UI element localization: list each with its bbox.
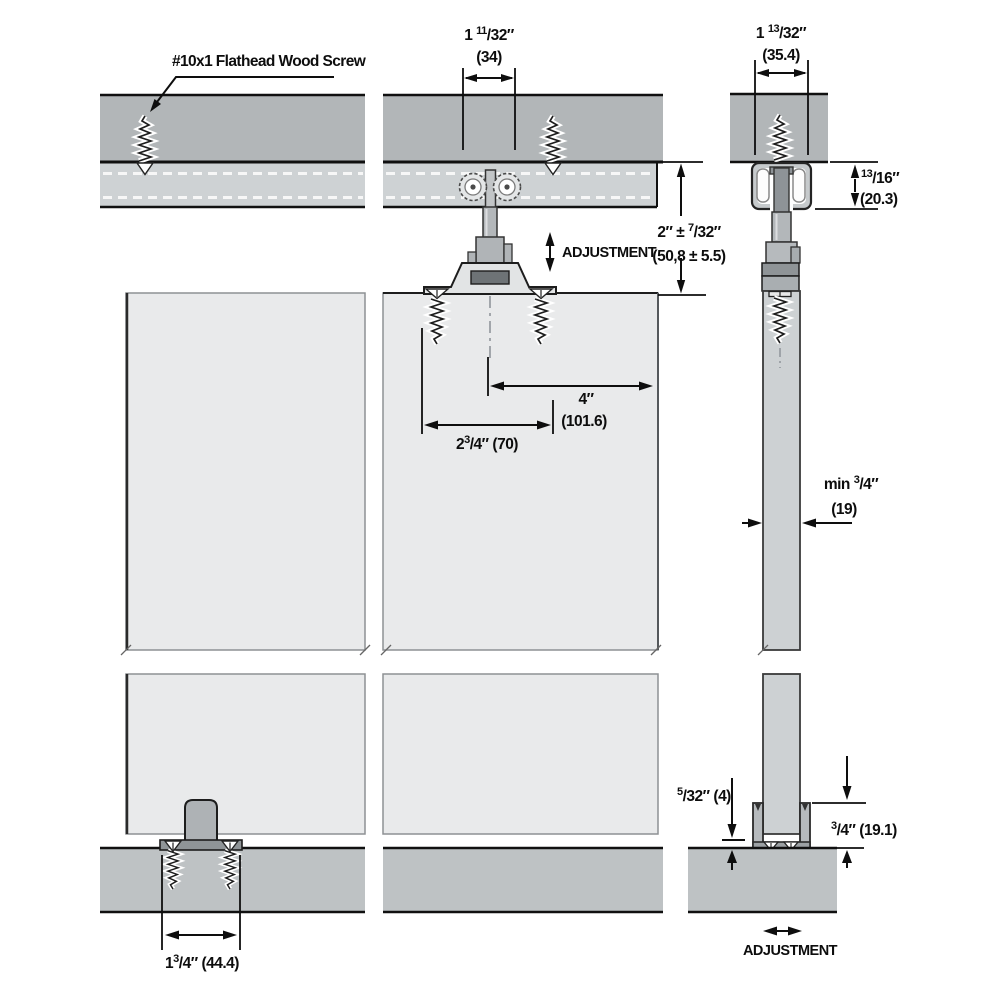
door-panel-middle-lower: [383, 674, 658, 834]
door-panel-left-upper: [121, 293, 370, 655]
door-panel-middle-upper: [381, 293, 661, 655]
dim-metric: (19): [831, 501, 857, 518]
dim-hanger-drop: 2″ ± 7/32″ (50,8 ± 5.5): [652, 162, 725, 295]
adjustment-nut: [476, 237, 504, 263]
hanger-bolt: [772, 212, 791, 242]
header-board-middle: [383, 95, 663, 162]
dim-metric: (50,8 ± 5.5): [652, 248, 725, 265]
door-panel-left-lower: [126, 674, 365, 834]
dim-label: 1 11/32″: [464, 25, 515, 44]
dim-track-height: 13/16″ (20.3): [815, 162, 900, 209]
dim-metric: (101.6): [561, 413, 607, 430]
hanger-web: [774, 168, 789, 216]
dim-label: 13/16″: [861, 168, 900, 187]
track-rail-middle: [383, 162, 663, 207]
dim-label: 5/32″ (4): [677, 786, 731, 805]
track-profile-section: [752, 163, 811, 216]
dim-label: min 3/4″: [824, 474, 879, 493]
adjustment-bottom: ADJUSTMENT: [743, 927, 838, 960]
dim-label: 13/4″ (44.4): [165, 953, 239, 972]
door-panel-side-lower: [763, 674, 800, 834]
adjustment-top: ADJUSTMENT: [546, 232, 657, 272]
front-elevation-left: [100, 95, 370, 912]
wood-screw-icon: [774, 115, 786, 160]
roller-slot: [793, 169, 805, 202]
hanger-bolt: [483, 207, 497, 238]
dim-label: 1 13/32″: [756, 23, 807, 42]
adjustment-top-label: ADJUSTMENT: [562, 245, 657, 261]
front-elevation-middle: [381, 95, 663, 912]
roller-wheel-icon: [460, 174, 487, 201]
dim-metric: (20.3): [860, 191, 898, 208]
hanger-stack-side: [762, 212, 800, 291]
floor-side: [688, 848, 837, 912]
door-panel-side-upper: [758, 291, 800, 655]
guide-block: [185, 800, 217, 842]
lock-nut-bar: [471, 271, 509, 284]
adjustment-bottom-label: ADJUSTMENT: [743, 943, 838, 959]
roller-wheel-icon: [494, 174, 521, 201]
dim-label: 4″: [578, 391, 594, 408]
dim-label: 3/4″ (19.1): [831, 820, 897, 839]
sliding-door-installation-diagram: #10x1 Flathead Wood Screw 1 11/32″ (34) …: [0, 0, 1000, 1000]
roller-slot: [757, 169, 769, 202]
dim-metric: (35.4): [762, 47, 800, 64]
floor-middle: [383, 848, 663, 912]
dim-label: 2″ ± 7/32″: [657, 222, 721, 241]
dim-metric: (34): [476, 49, 502, 66]
screw-callout-label: #10x1 Flathead Wood Screw: [172, 53, 367, 70]
track-rail-left: [100, 162, 365, 207]
diagram-canvas: #10x1 Flathead Wood Screw 1 11/32″ (34) …: [0, 0, 1000, 1000]
